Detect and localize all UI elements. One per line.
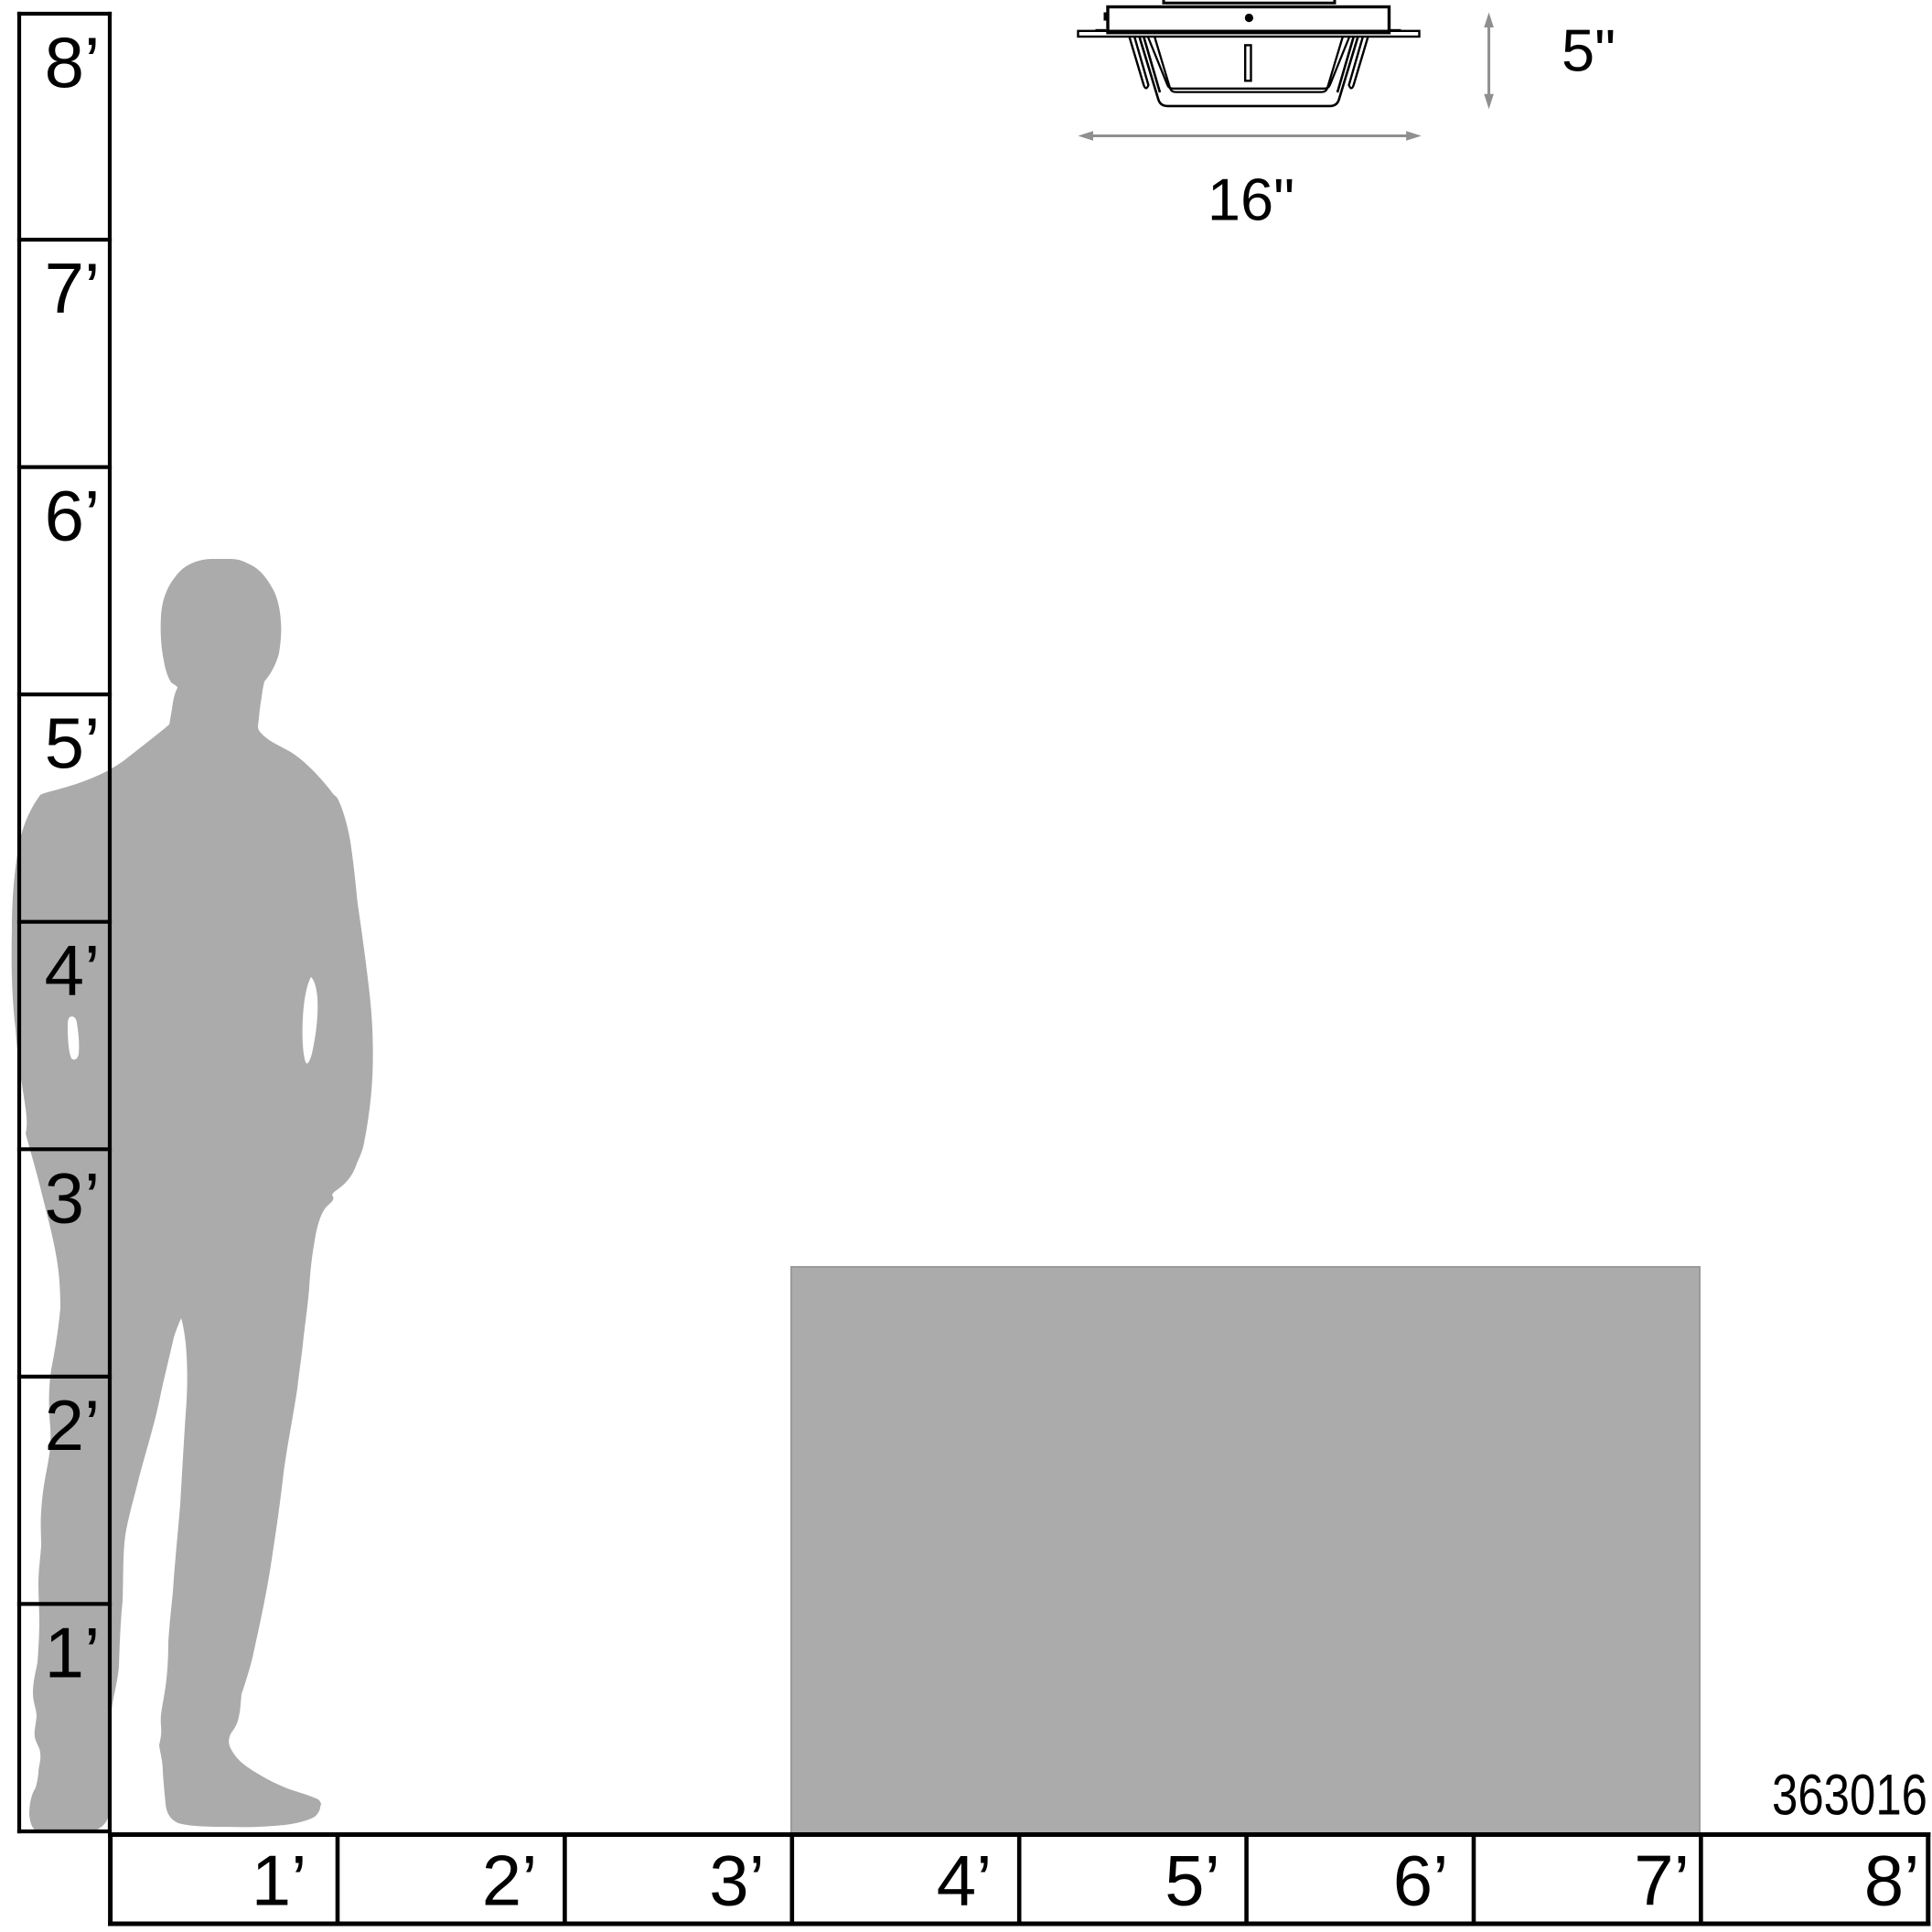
svg-text:4’: 4’ xyxy=(45,930,101,1011)
svg-text:2’: 2’ xyxy=(482,1841,538,1921)
svg-text:5’: 5’ xyxy=(45,703,101,783)
svg-text:1’: 1’ xyxy=(252,1841,307,1921)
svg-text:7’: 7’ xyxy=(45,248,101,328)
svg-text:3’: 3’ xyxy=(709,1841,765,1921)
svg-text:3’: 3’ xyxy=(45,1157,101,1238)
svg-text:7’: 7’ xyxy=(1634,1841,1690,1921)
svg-text:5": 5" xyxy=(1562,17,1615,84)
svg-text:1’: 1’ xyxy=(45,1612,101,1692)
svg-text:6’: 6’ xyxy=(1393,1841,1449,1921)
svg-text:363016: 363016 xyxy=(1772,1764,1927,1828)
svg-text:16": 16" xyxy=(1207,166,1294,233)
svg-text:4’: 4’ xyxy=(937,1841,993,1921)
svg-text:5’: 5’ xyxy=(1165,1841,1220,1921)
svg-text:6’: 6’ xyxy=(45,476,101,556)
svg-text:8’: 8’ xyxy=(45,22,101,102)
svg-text:8’: 8’ xyxy=(1864,1841,1920,1921)
svg-text:2’: 2’ xyxy=(45,1385,101,1465)
